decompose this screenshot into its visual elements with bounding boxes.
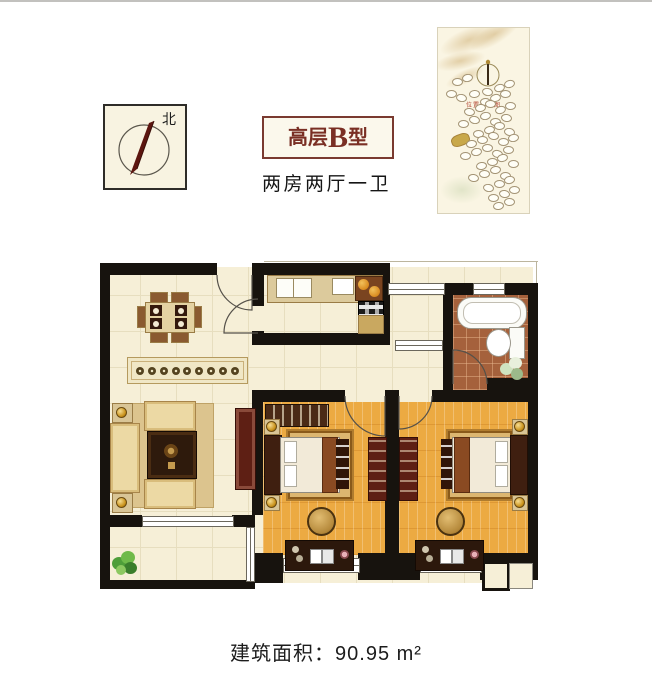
north-label: 北 — [162, 109, 176, 129]
kitchen-door-arc — [224, 299, 258, 333]
building-outline — [477, 136, 488, 144]
unit-type-title-box: 高层B型 — [262, 116, 394, 159]
building-outline — [482, 183, 494, 193]
dresser-flower — [296, 555, 303, 562]
dresser-flower — [340, 550, 349, 559]
nightstand-lamp — [514, 421, 525, 432]
nightstand-lamp — [266, 497, 277, 508]
unit-layout-subtitle: 两房两厅一卫 — [262, 169, 391, 196]
building-outline — [455, 93, 467, 103]
plant-leaf — [124, 562, 137, 574]
building-outline — [470, 147, 482, 157]
building-outline — [503, 146, 514, 154]
table-lamp — [116, 497, 127, 508]
building-outline — [507, 133, 519, 143]
building-outline — [458, 120, 469, 128]
title-prefix: 高层 — [288, 128, 328, 148]
dresser-flower — [292, 546, 299, 553]
bedroom2-dresser-bottom — [415, 540, 484, 571]
building-outline — [468, 115, 480, 125]
building-outline — [488, 194, 499, 202]
building-outline — [460, 152, 471, 160]
building-outline — [508, 160, 519, 168]
dresser-books — [310, 549, 322, 564]
building-outline — [467, 173, 479, 182]
nightstand-lamp — [266, 421, 277, 432]
building-outline — [479, 170, 490, 178]
bedroom1-door-arc — [345, 396, 385, 436]
building-outline — [492, 201, 504, 210]
building-outline — [503, 79, 516, 90]
bedroom1-dresser-bottom — [285, 540, 354, 571]
site-plan-buildings — [438, 28, 529, 213]
bedroom2-door-arc — [399, 396, 432, 429]
building-outline — [504, 198, 515, 206]
building-outline — [509, 186, 520, 194]
nightstand-lamp — [514, 497, 525, 508]
building-outline — [461, 73, 473, 83]
title-suffix: 型 — [348, 128, 368, 148]
compass-box: 北 — [103, 104, 187, 190]
title-letter: B — [328, 123, 348, 153]
building-outline — [500, 90, 511, 98]
dresser-flower — [426, 555, 433, 562]
building-outline — [485, 100, 496, 108]
page-top-border — [0, 0, 652, 2]
bedroom1-pouf — [307, 507, 336, 536]
building-outline — [482, 144, 493, 152]
site-plan-box: 位置示意图 — [437, 27, 530, 214]
dresser-books — [322, 549, 334, 564]
building-outline — [469, 90, 481, 99]
plant-leaf — [116, 565, 126, 575]
building-outline — [505, 102, 516, 110]
dresser-flower — [470, 550, 479, 559]
bathroom-door-arc — [453, 350, 487, 384]
building-outline — [500, 113, 512, 122]
entry-door-arc — [217, 275, 252, 310]
balcony-plant — [112, 549, 140, 577]
plant-leaf — [511, 368, 523, 380]
table-lamp — [116, 407, 127, 418]
floor-plan — [100, 253, 540, 593]
dresser-books — [452, 549, 464, 564]
dresser-flower — [422, 546, 429, 553]
dresser-books — [440, 549, 452, 564]
building-outline — [494, 122, 505, 130]
bedroom2-pouf — [436, 507, 465, 536]
building-outline — [503, 175, 515, 185]
building-area-text: 建筑面积：90.95 m² — [0, 637, 652, 666]
building-outline — [496, 153, 508, 163]
bathroom-plant — [498, 353, 526, 383]
floorplan-page: 北 高层B型 两房两厅一卫 位置示意图 — [0, 0, 652, 675]
